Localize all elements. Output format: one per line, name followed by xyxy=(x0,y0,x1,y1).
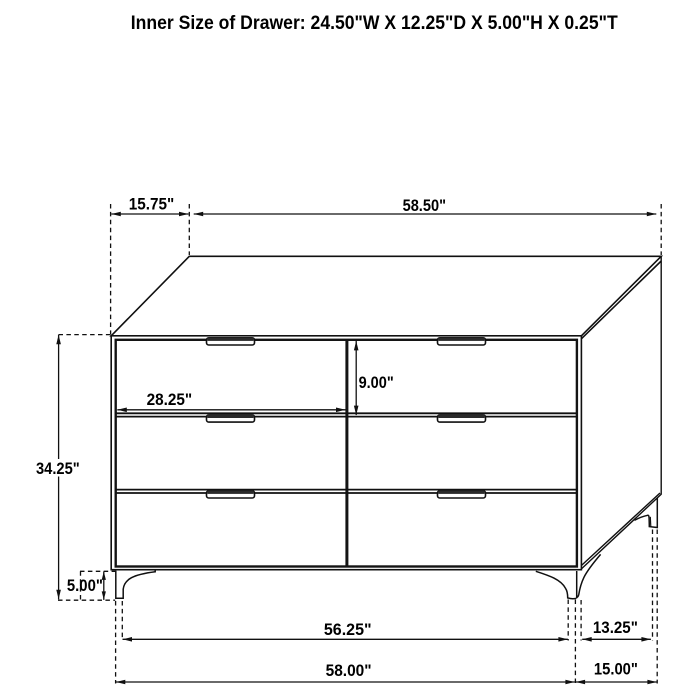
svg-text:13.25": 13.25" xyxy=(593,618,638,637)
svg-text:15.75": 15.75" xyxy=(129,194,175,213)
svg-text:5.00": 5.00" xyxy=(67,576,103,595)
svg-text:58.00": 58.00" xyxy=(326,661,372,680)
svg-text:58.50": 58.50" xyxy=(403,196,446,215)
svg-text:Inner Size of Drawer: 24.50"W: Inner Size of Drawer: 24.50"W X 12.25"D … xyxy=(131,12,618,34)
svg-text:15.00": 15.00" xyxy=(594,660,638,679)
svg-text:56.25": 56.25" xyxy=(324,620,372,639)
svg-text:28.25": 28.25" xyxy=(147,390,193,409)
svg-text:34.25": 34.25" xyxy=(36,459,80,478)
svg-text:9.00": 9.00" xyxy=(359,373,394,392)
